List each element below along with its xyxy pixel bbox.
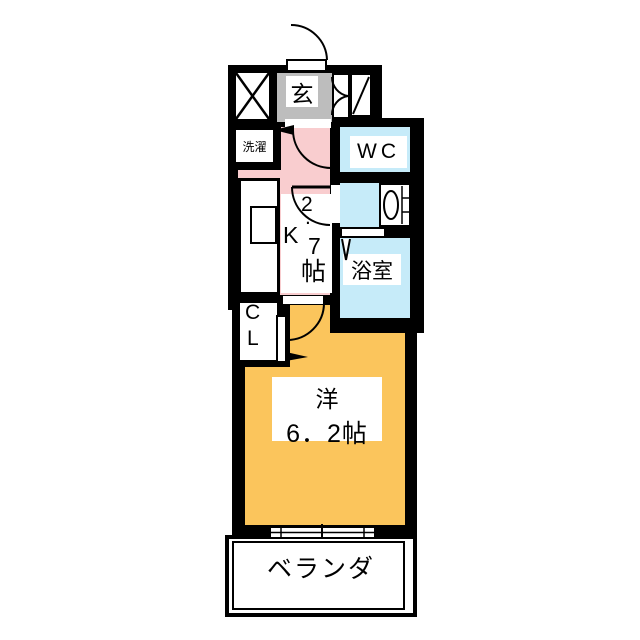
- meter-box: [350, 73, 372, 117]
- entrance-label-text: 玄: [291, 75, 314, 109]
- kitchen-label-char: K: [283, 222, 298, 249]
- toilet-label: WC: [350, 136, 407, 168]
- toilet-label-text: WC: [357, 140, 400, 164]
- entrance-door-leaf: [286, 59, 327, 72]
- laundry-label: 洗濯: [236, 130, 273, 162]
- room-door-leaf: [276, 315, 287, 363]
- floor-plan: 洗濯 C L 玄 WC 浴室 2 . K 7 帖 洋 6．2帖 ベランダ: [0, 0, 640, 640]
- shoe-cabinet-box: [332, 73, 350, 119]
- kitchen-label-char: 帖: [301, 252, 326, 288]
- entrance-label: 玄: [286, 76, 318, 107]
- western-room-size: 6．2帖: [272, 414, 382, 450]
- closet-label-c: C: [245, 301, 260, 325]
- western-room-name: 洋: [272, 380, 382, 414]
- washroom-area: [340, 183, 410, 227]
- shaft-box: [236, 73, 269, 119]
- bathroom-label-text: 浴室: [351, 255, 393, 285]
- laundry-label-text: 洗濯: [242, 138, 266, 155]
- folding-door-bathroom: [340, 227, 386, 238]
- bathroom-label: 浴室: [343, 254, 401, 285]
- veranda-label: ベランダ: [240, 551, 402, 583]
- entrance-door-arc-icon: [291, 25, 327, 60]
- kitchen-label-char: .: [305, 206, 311, 230]
- sink-icon: [250, 206, 277, 244]
- wall-room-right: [405, 333, 417, 539]
- closet-label-l: L: [247, 327, 259, 351]
- doorway-entrance-kitchen: [285, 119, 331, 128]
- doorway-room: [283, 296, 323, 304]
- doorway-washroom: [331, 185, 340, 223]
- veranda-label-text: ベランダ: [267, 549, 375, 585]
- western-room-label: 洋 6．2帖: [272, 377, 382, 441]
